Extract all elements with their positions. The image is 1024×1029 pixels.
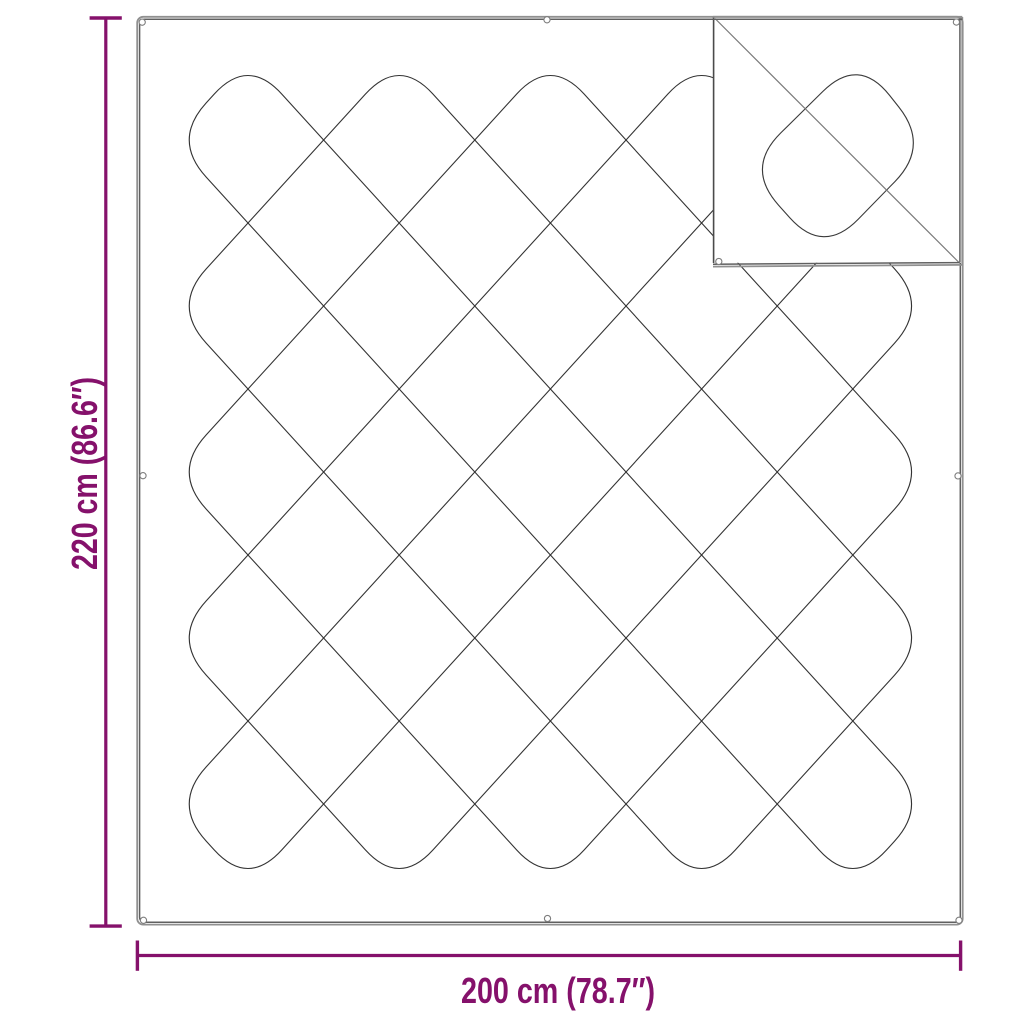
svg-text:220 cm (86.6″): 220 cm (86.6″) xyxy=(64,377,105,570)
svg-text:200 cm (78.7″): 200 cm (78.7″) xyxy=(461,970,655,1011)
